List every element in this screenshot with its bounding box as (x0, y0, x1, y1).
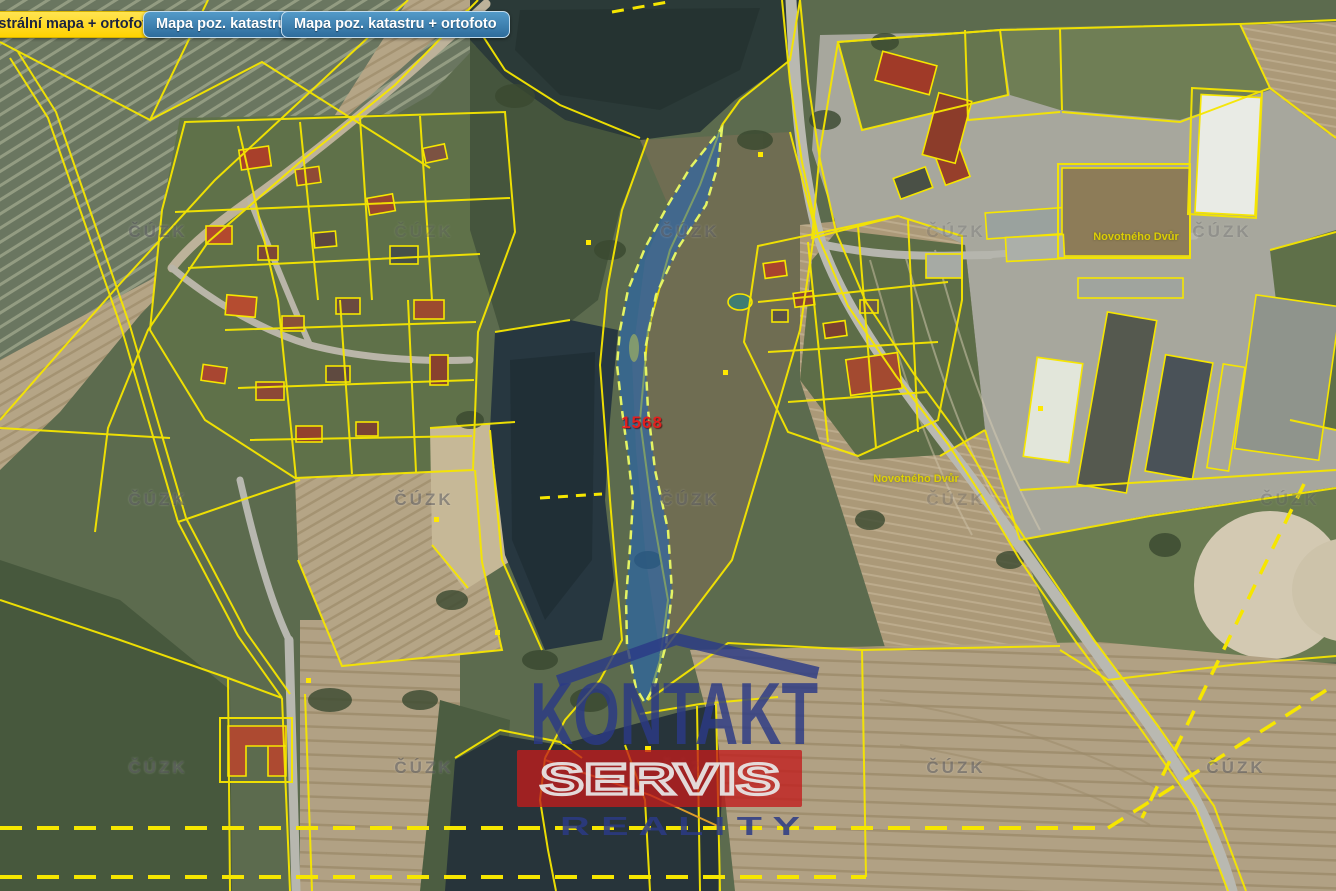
aerial-map-canvas (0, 0, 1336, 891)
layer-button-poz-katastr-ortofoto[interactable]: Mapa poz. katastru + ortofoto (281, 11, 510, 38)
parcel-island (629, 334, 639, 362)
map-viewport[interactable]: ČÚZK ČÚZK ČÚZK ČÚZK ČÚZK ČÚZK ČÚZK ČÚZK … (0, 0, 1336, 891)
layer-button-poz-katastr[interactable]: Mapa poz. katastru (143, 11, 300, 38)
